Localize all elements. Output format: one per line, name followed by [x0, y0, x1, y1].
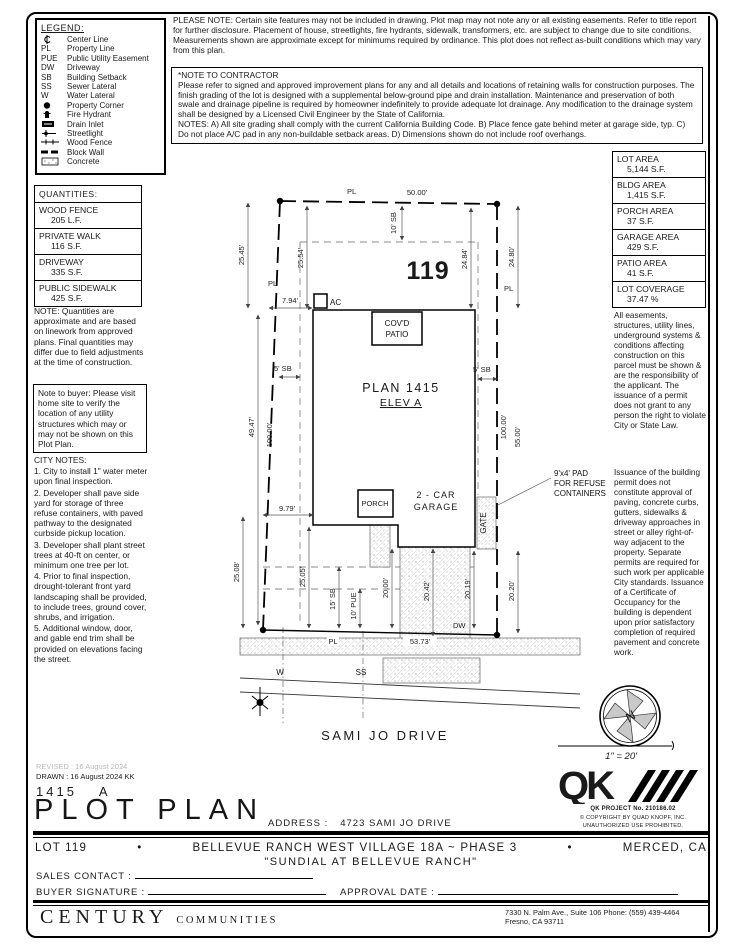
dim-left-length-2: 100.00'	[265, 422, 274, 447]
legend-item: DWDriveway	[41, 63, 160, 72]
divider-thin	[33, 837, 709, 838]
bullet: •	[137, 842, 142, 854]
address-value: 4723 SAMI JO DRIVE	[340, 818, 451, 829]
dim-drive-3: 20.19'	[463, 578, 472, 599]
legend-item: Property Corner	[41, 101, 160, 110]
quantities-note: NOTE: Quantities are approximate and are…	[34, 306, 146, 367]
quantity-row: PUBLIC SIDEWALK425 S.F.	[35, 280, 141, 306]
divider-thick	[33, 831, 709, 835]
dim-right-length-1: 100.00'	[499, 414, 508, 439]
covered-patio-label-2: PATIO	[386, 330, 409, 339]
legend-item: PUEPublic Utility Easement	[41, 54, 160, 63]
dim-left-outer: 25.45'	[237, 244, 246, 265]
dim-front-setback: 15' SB	[328, 588, 337, 610]
dim-drive-2: 20.42'	[422, 580, 431, 601]
refuse-leader-line	[498, 478, 551, 505]
city-notes-title: CITY NOTES:	[34, 455, 148, 465]
setback-symbol: SB	[41, 73, 67, 82]
lot-number-label: LOT 119	[35, 842, 87, 854]
legend-item: Drain Inlet	[41, 120, 160, 129]
dim-right-inner: 24.84'	[460, 248, 469, 269]
approval-date-row: APPROVAL DATE :	[340, 886, 678, 898]
driveway-apron-area	[383, 658, 480, 683]
community-name: BELLEVUE RANCH WEST VILLAGE 18A ~ PHASE …	[193, 842, 518, 854]
area-row: BLDG AREA1,415 S.F.	[613, 177, 705, 203]
property-line-left	[263, 201, 280, 630]
sales-contact-row: SALES CONTACT :	[36, 870, 313, 882]
buyer-note-box: Note to buyer: Please visit home site to…	[33, 384, 147, 453]
property-corner-dot	[260, 627, 266, 633]
legend-item: SSSewer Lateral	[41, 82, 160, 91]
concrete-icon	[41, 157, 67, 166]
city-notes: CITY NOTES: 1. City to install 1" water …	[34, 455, 148, 665]
svg-text:QK: QK	[558, 766, 615, 804]
street-edge-line	[240, 692, 580, 708]
buyer-signature-label: BUYER SIGNATURE :	[36, 887, 145, 898]
sewer-lateral-label: SS	[356, 668, 367, 677]
quantities-title: QUANTITIES:	[35, 186, 141, 202]
address-row: ADDRESS :4723 SAMI JO DRIVE	[268, 818, 452, 829]
dim-front-left-inner: 25.05'	[298, 566, 307, 587]
builder-logo: CENTURY COMMUNITIES	[40, 906, 278, 929]
city-note-item: 3. Developer shall plant street trees at…	[34, 540, 148, 571]
streetlight-icon	[41, 129, 67, 138]
property-corner-dot	[494, 201, 500, 207]
property-line-top	[280, 201, 497, 204]
divider-thick-2	[33, 900, 709, 903]
area-row: GARAGE AREA429 S.F.	[613, 229, 705, 255]
scale-text: 1" = 20'	[556, 751, 686, 762]
streetlight-symbol	[252, 687, 268, 716]
covered-patio-outline	[372, 312, 422, 345]
quantities-box: QUANTITIES: WOOD FENCE205 L.F. PRIVATE W…	[34, 185, 142, 307]
contractor-note-list: NOTES: A) All site grading shall comply …	[178, 120, 696, 140]
builder-name: CENTURY	[40, 906, 168, 929]
dim-porch-offset: 9.79'	[279, 504, 296, 513]
contractor-note-box: *NOTE TO CONTRACTOR Please refer to sign…	[171, 67, 703, 144]
dim-right-outer: 24.80'	[507, 246, 516, 267]
porch-label: PORCH	[361, 499, 388, 508]
dim-left-inner: 25.54'	[296, 247, 305, 268]
approval-date-label: APPROVAL DATE :	[340, 887, 435, 898]
revised-date: REVISED : 16 August 2024	[36, 762, 127, 771]
dim-bottom: 53.73'	[410, 637, 431, 646]
address-label: ADDRESS :	[268, 818, 328, 829]
pue-symbol: PUE	[41, 54, 67, 63]
garage-label-1: 2 - CAR	[416, 490, 455, 500]
pl-label-top: PL	[347, 187, 356, 196]
city-label: MERCED, CA	[623, 842, 707, 854]
covered-patio-label-1: COV'D	[385, 319, 410, 328]
gate-label: GATE	[479, 512, 488, 533]
driveway-symbol: DW	[41, 63, 67, 72]
dim-pue: 10' PUE	[349, 592, 358, 619]
legend-item: Fire Hydrant	[41, 110, 160, 119]
areas-box: LOT AREA5,144 S.F. BLDG AREA1,415 S.F. P…	[612, 151, 706, 308]
legend-item: PLProperty Line	[41, 44, 160, 53]
sheet-title: PLOT PLAN	[34, 794, 265, 827]
plot-drawing: 50.00' PL 25.45' 25.54' 24.84' 24.80' 10…	[225, 175, 615, 775]
property-line-symbol: PL	[41, 44, 67, 53]
dim-drive-4: 20.20'	[507, 580, 516, 601]
legend-item: Wood Fence	[41, 138, 160, 147]
legend-title: LEGEND:	[41, 23, 160, 33]
dim-right-length-2: 55.00'	[513, 426, 522, 447]
builder-address-line1: 7330 N. Palm Ave., Suite 106 Phone: (559…	[505, 908, 705, 917]
wood-fence-icon	[41, 138, 67, 147]
legend-item: SBBuilding Setback	[41, 73, 160, 82]
city-note-item: 2. Developer shall pave side yard for st…	[34, 488, 148, 539]
dim-side-setback-right: 5' SB	[473, 365, 491, 374]
dim-top: 50.00'	[407, 188, 428, 197]
garage-label-2: GARAGE	[414, 502, 459, 512]
property-corner-dot	[277, 198, 283, 204]
builder-address-line2: Fresno, CA 93711	[505, 917, 705, 926]
city-note-item: 4. Prior to final inspection, drought-to…	[34, 571, 148, 622]
bullet: •	[567, 842, 572, 854]
sales-contact-blank[interactable]	[135, 870, 313, 879]
dim-left-length-1: 49.47'	[247, 416, 256, 437]
approval-date-blank[interactable]	[438, 886, 678, 895]
dim-side-setback-left: 5' SB	[274, 364, 292, 373]
area-row: PORCH AREA37 S.F.	[613, 203, 705, 229]
drawn-date: DRAWN : 16 August 2024 KK	[36, 772, 135, 781]
sales-contact-label: SALES CONTACT :	[36, 871, 132, 882]
driveway-label: DW	[453, 621, 466, 630]
legend-item: Center Line	[41, 35, 160, 44]
lot-number: 119	[406, 257, 449, 285]
water-symbol: W	[41, 91, 67, 100]
property-corner-icon	[41, 101, 67, 110]
plan-name: PLAN 1415	[362, 381, 439, 395]
qk-copyright: © COPYRIGHT BY QUAD KNOPF, INC.	[556, 815, 710, 823]
dim-ac-offset: 7.94'	[282, 296, 299, 305]
quantity-row: WOOD FENCE205 L.F.	[35, 202, 141, 228]
pl-label-left: PL	[268, 279, 277, 288]
lot-row: LOT 119 • BELLEVUE RANCH WEST VILLAGE 18…	[35, 842, 707, 854]
city-note-item: 5. Additional window, door, and gable en…	[34, 623, 148, 664]
pl-label-right: PL	[504, 284, 513, 293]
buyer-signature-row: BUYER SIGNATURE :	[36, 886, 326, 898]
legend-item: Block Wall	[41, 148, 160, 157]
property-corner-dot	[494, 632, 500, 638]
area-row: PATIO AREA41 S.F.	[613, 255, 705, 281]
plan-elevation: ELEV A	[380, 397, 422, 409]
builder-address: 7330 N. Palm Ave., Suite 106 Phone: (559…	[505, 908, 705, 926]
community-subtitle: "SUNDIAL AT BELLEVUE RANCH"	[35, 856, 707, 868]
legend-box: LEGEND: Center Line PLProperty Line PUEP…	[35, 18, 166, 175]
legend-item: Streetlight	[41, 129, 160, 138]
dim-drive-1: 20.00'	[381, 577, 390, 598]
legend-item: Concrete	[41, 157, 160, 166]
city-note-item: 1. City to install 1" water meter upon f…	[34, 466, 148, 486]
water-lateral-label: W	[276, 668, 284, 677]
qk-project-number: QK PROJECT No. 210186.02	[556, 806, 710, 814]
permit-note: Issuance of the building permit does not…	[614, 468, 706, 658]
refuse-pad-label-2: FOR REFUSE	[554, 479, 606, 488]
street-name: SAMI JO DRIVE	[321, 728, 449, 743]
ac-pad	[314, 294, 327, 308]
pl-label-bottom: PL	[328, 637, 337, 646]
qk-logo: QK	[556, 766, 710, 804]
fire-hydrant-icon	[41, 110, 67, 119]
easement-note: All easements, structures, utility lines…	[614, 311, 706, 431]
builder-name-suffix: COMMUNITIES	[176, 915, 278, 926]
sewer-symbol: SS	[41, 82, 67, 91]
center-line-icon	[41, 35, 67, 44]
area-row: LOT COVERAGE37.47 %	[613, 281, 705, 307]
ac-label: AC	[330, 298, 341, 307]
legend-item: WWater Lateral	[41, 91, 160, 100]
drain-inlet-icon	[41, 120, 67, 129]
dim-front-left-outer: 25.08'	[232, 561, 241, 582]
area-row: LOT AREA5,144 S.F.	[613, 152, 705, 177]
plot-plan-sheet: LEGEND: Center Line PLProperty Line PUEP…	[0, 0, 731, 945]
quantity-row: DRIVEWAY335 S.F.	[35, 254, 141, 280]
dim-rear-setback: 10' SB	[389, 212, 398, 234]
block-wall-icon	[41, 148, 67, 157]
please-note-text: PLEASE NOTE: Certain site features may n…	[173, 15, 703, 55]
refuse-pad-label-3: CONTAINERS	[554, 489, 606, 498]
buyer-signature-blank[interactable]	[148, 886, 326, 895]
quantity-row: PRIVATE WALK116 S.F.	[35, 228, 141, 254]
contractor-note-body: Please refer to signed and approved impr…	[178, 81, 696, 120]
qk-unauthorized: UNAUTHORIZED USE PROHIBITED.	[556, 823, 710, 831]
refuse-pad-label-1: 9'x4' PAD	[554, 469, 588, 478]
